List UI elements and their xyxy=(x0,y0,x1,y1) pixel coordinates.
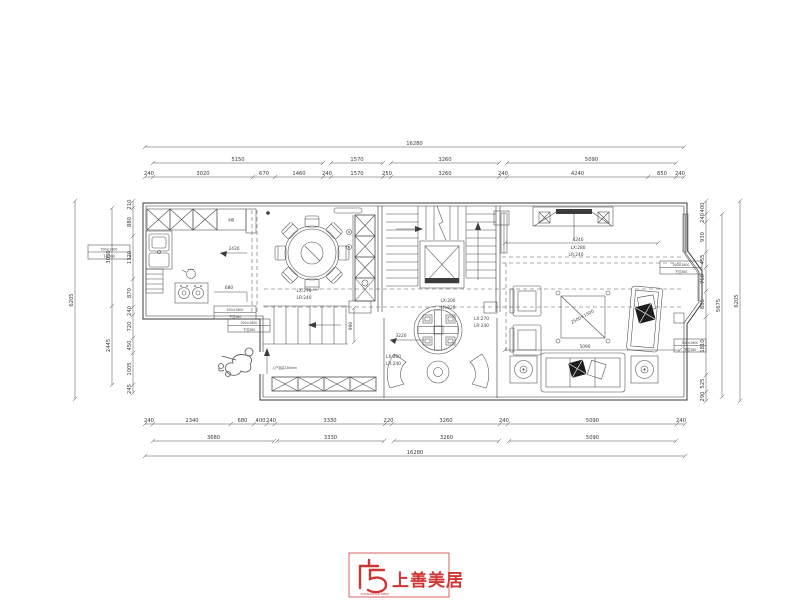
svg-text:245: 245 xyxy=(127,384,133,394)
living-lr-label: LR:240 xyxy=(569,252,584,258)
svg-text:6205: 6205 xyxy=(69,293,75,306)
fridge-icon: 冰箱 xyxy=(217,209,246,230)
svg-text:2340: 2340 xyxy=(185,418,198,424)
svg-text:下沉380: 下沉380 xyxy=(243,327,255,332)
sofa-icon xyxy=(541,353,625,392)
dimension-chains: 1628051501570326050902403020670146024015… xyxy=(69,141,742,458)
svg-text:16280: 16280 xyxy=(406,141,423,147)
svg-text:1570: 1570 xyxy=(350,171,363,177)
svg-text:240: 240 xyxy=(144,418,154,424)
stove-icon xyxy=(175,283,208,303)
coin-motif-icon xyxy=(414,306,462,354)
kitchen-dimension: 2430 680 xyxy=(214,246,247,302)
living-room: 4240 LX:280 LR:240 2500×1500 5090 xyxy=(503,207,682,392)
svg-text:240: 240 xyxy=(498,171,508,177)
svg-text:930: 930 xyxy=(700,232,706,242)
dashed-zone-lines xyxy=(252,210,683,352)
svg-text:6205: 6205 xyxy=(734,294,740,307)
living-width-dimension: 5090 xyxy=(503,344,682,352)
fridge-label: 冰箱 xyxy=(228,217,235,222)
logo-mark-icon xyxy=(360,560,386,592)
svg-text:720: 720 xyxy=(127,322,133,332)
dining-lx-label: LX:270 xyxy=(297,288,312,294)
appliance-icon xyxy=(146,269,163,293)
svg-text:240: 240 xyxy=(499,418,509,424)
upper-cabinets-icon xyxy=(147,209,217,230)
brand-logo: SHANGSHAN MEIJU 上善美居 xyxy=(349,553,464,597)
round-tea-table-icon xyxy=(427,361,449,383)
logo-name: 上善美居 xyxy=(392,570,464,591)
svg-text:1320: 1320 xyxy=(127,251,133,264)
tea-dimension: 3220 xyxy=(390,333,424,344)
svg-text:400: 400 xyxy=(256,418,266,424)
annotation-tag: 500×2800 下沉380 xyxy=(214,306,256,319)
stair-up-arrow-icon xyxy=(475,222,481,280)
svg-text:3050: 3050 xyxy=(106,250,112,263)
dining-lr-label: LR:240 xyxy=(297,295,312,301)
column-hatch xyxy=(484,302,497,313)
armchair-icon xyxy=(510,286,541,355)
svg-text:450: 450 xyxy=(127,341,133,351)
svg-text:670: 670 xyxy=(259,171,269,177)
tv-wall-dimension: 4240 LX:280 LR:240 xyxy=(503,237,660,258)
svg-text:3020: 3020 xyxy=(196,171,209,177)
kettle-icon xyxy=(182,269,196,279)
svg-text:240: 240 xyxy=(676,418,686,424)
svg-text:5150: 5150 xyxy=(231,157,244,163)
stair-lx-label: LX:200 xyxy=(441,298,456,304)
svg-text:下沉380: 下沉380 xyxy=(684,347,696,352)
corridor-arrow-icon xyxy=(396,226,423,232)
svg-text:240: 240 xyxy=(322,171,332,177)
svg-text:1460: 1460 xyxy=(292,171,305,177)
logo-caption: SHANGSHAN MEIJU xyxy=(361,592,390,596)
dining-cabinet-icon xyxy=(347,215,376,301)
dining-table-icon xyxy=(285,226,339,280)
svg-text:870: 870 xyxy=(127,288,133,298)
svg-text:3330: 3330 xyxy=(324,435,337,441)
svg-text:455: 455 xyxy=(700,255,706,265)
column-hatch xyxy=(349,301,371,313)
svg-text:3260: 3260 xyxy=(440,435,453,441)
svg-text:5675: 5675 xyxy=(716,299,722,312)
column-hatch xyxy=(674,313,684,323)
entry-note-label: 入户抬高180mm xyxy=(272,365,297,370)
svg-text:210: 210 xyxy=(127,200,133,210)
svg-text:1810: 1810 xyxy=(700,339,706,352)
svg-text:500×2800: 500×2800 xyxy=(673,263,690,267)
floor-plan-sheet: 冰箱 2430 680 xyxy=(0,0,800,600)
svg-text:240: 240 xyxy=(700,213,706,223)
svg-text:16280: 16280 xyxy=(407,450,424,456)
svg-text:850: 850 xyxy=(657,171,667,177)
svg-text:1005: 1005 xyxy=(127,362,133,375)
entry-steps-icon xyxy=(263,306,348,344)
svg-text:240: 240 xyxy=(127,306,133,316)
living-wall-dim-label: 4240 xyxy=(573,237,584,243)
kitchen-dim-label: 2430 xyxy=(229,246,240,252)
tv-wall-icon xyxy=(533,207,613,241)
tea-room: 3220 LX:400 LR:240 LX:270 LR:240 xyxy=(386,306,489,388)
tea-right-lr-label: LR:240 xyxy=(474,323,489,329)
entry-cabinet-icon xyxy=(272,377,376,391)
svg-text:220: 220 xyxy=(384,418,394,424)
annotation-tag: 500×2800 下沉380 xyxy=(228,319,270,332)
svg-text:240: 240 xyxy=(144,171,154,177)
svg-text:400: 400 xyxy=(700,203,706,213)
svg-text:680: 680 xyxy=(238,418,248,424)
svg-text:4240: 4240 xyxy=(571,171,584,177)
kitchen: 冰箱 2430 680 xyxy=(146,209,247,303)
living-width-dim-label: 5090 xyxy=(580,344,591,350)
svg-text:下沉380: 下沉380 xyxy=(675,269,687,274)
svg-text:3260: 3260 xyxy=(438,157,451,163)
svg-text:3330: 3330 xyxy=(323,418,336,424)
interior-walls xyxy=(246,206,698,398)
exterior-walls xyxy=(143,203,702,400)
tea-dim-label: 3220 xyxy=(396,333,407,339)
svg-text:3260: 3260 xyxy=(438,171,451,177)
sink-icon xyxy=(146,231,172,269)
tea-left-lr-label: LR:240 xyxy=(386,361,401,367)
floor-plan-drawing: 冰箱 2430 680 xyxy=(0,0,800,600)
svg-text:500×2800: 500×2800 xyxy=(682,341,699,345)
svg-text:805: 805 xyxy=(700,299,706,309)
svg-text:3680: 3680 xyxy=(207,435,220,441)
wall-shelf-icon xyxy=(334,208,362,213)
svg-text:500×2800: 500×2800 xyxy=(241,321,258,325)
kitchen-dim2-label: 680 xyxy=(225,285,233,291)
tea-left-lx-label: LX:400 xyxy=(386,354,401,360)
svg-text:5090: 5090 xyxy=(586,435,599,441)
step-dim-label: 990 xyxy=(348,322,354,330)
chaise-sofa-icon xyxy=(626,286,662,352)
elevator-shaft-icon xyxy=(420,241,464,288)
column-hatch xyxy=(246,209,256,233)
ceiling-dot-icon xyxy=(266,211,270,215)
break-line-icon xyxy=(437,206,446,240)
svg-text:290: 290 xyxy=(700,392,706,402)
svg-text:240: 240 xyxy=(675,171,685,177)
svg-text:下沉380: 下沉380 xyxy=(229,314,241,319)
entry-opening xyxy=(257,352,265,374)
stair-hall: LX:200 LR:220 xyxy=(386,206,496,311)
svg-text:525: 525 xyxy=(700,379,706,389)
svg-text:5090: 5090 xyxy=(585,157,598,163)
svg-text:250: 250 xyxy=(382,171,392,177)
svg-text:500×2800: 500×2800 xyxy=(227,308,244,312)
dining-room: LX:270 LR:240 xyxy=(266,208,375,301)
svg-text:240: 240 xyxy=(266,418,276,424)
svg-text:3260: 3260 xyxy=(439,418,452,424)
svg-text:760: 760 xyxy=(700,274,706,284)
living-lx-label: LX:280 xyxy=(571,245,586,251)
sketch-figure xyxy=(219,348,254,377)
tea-right-lx-label: LX:270 xyxy=(474,316,489,322)
coffee-table-label: 2500×1500 xyxy=(570,308,596,325)
svg-text:880: 880 xyxy=(127,217,133,227)
svg-text:2445: 2445 xyxy=(106,339,112,352)
coffee-table-icon: 2500×1500 xyxy=(556,291,610,343)
svg-text:5090: 5090 xyxy=(586,418,599,424)
svg-text:1570: 1570 xyxy=(350,157,363,163)
